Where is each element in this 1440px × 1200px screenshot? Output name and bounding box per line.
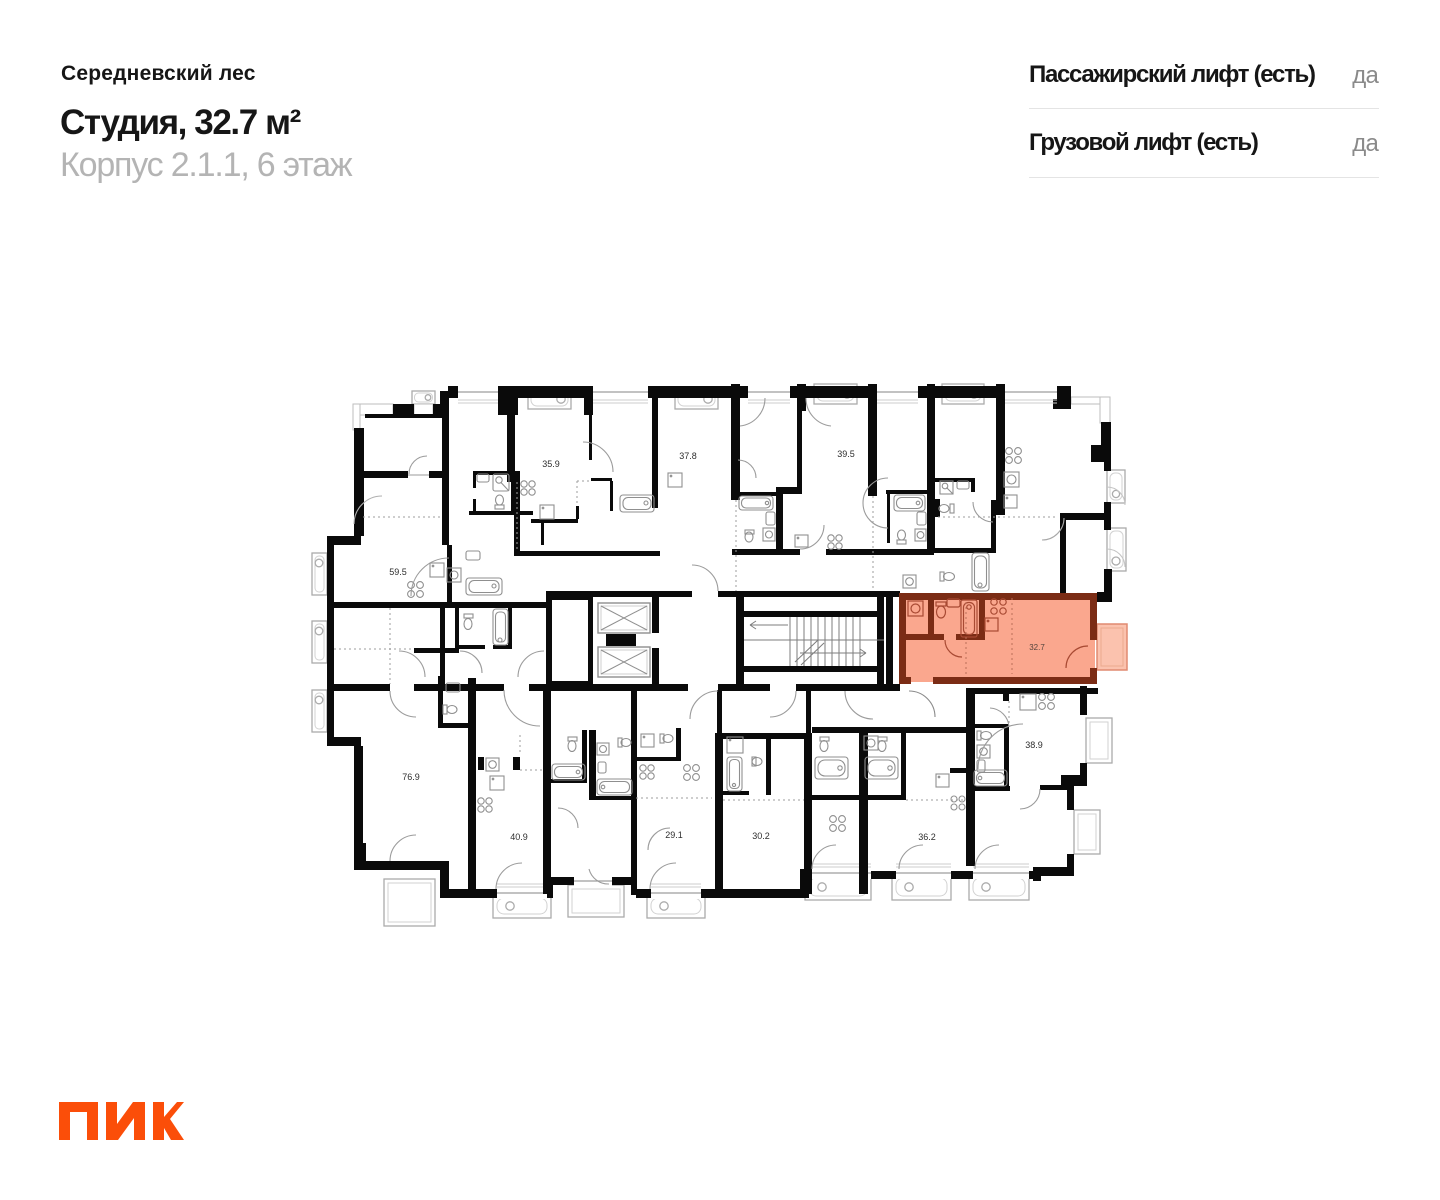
svg-text:35.9: 35.9 (542, 459, 560, 469)
svg-text:39.5: 39.5 (837, 449, 855, 459)
svg-text:76.9: 76.9 (402, 772, 420, 782)
svg-text:40.9: 40.9 (510, 832, 528, 842)
svg-text:38.9: 38.9 (1025, 740, 1043, 750)
svg-text:37.8: 37.8 (679, 451, 697, 461)
svg-text:36.2: 36.2 (918, 832, 936, 842)
svg-text:30.2: 30.2 (752, 831, 770, 841)
svg-text:32.7: 32.7 (1029, 643, 1045, 652)
svg-text:59.5: 59.5 (389, 567, 407, 577)
svg-text:29.1: 29.1 (665, 830, 683, 840)
